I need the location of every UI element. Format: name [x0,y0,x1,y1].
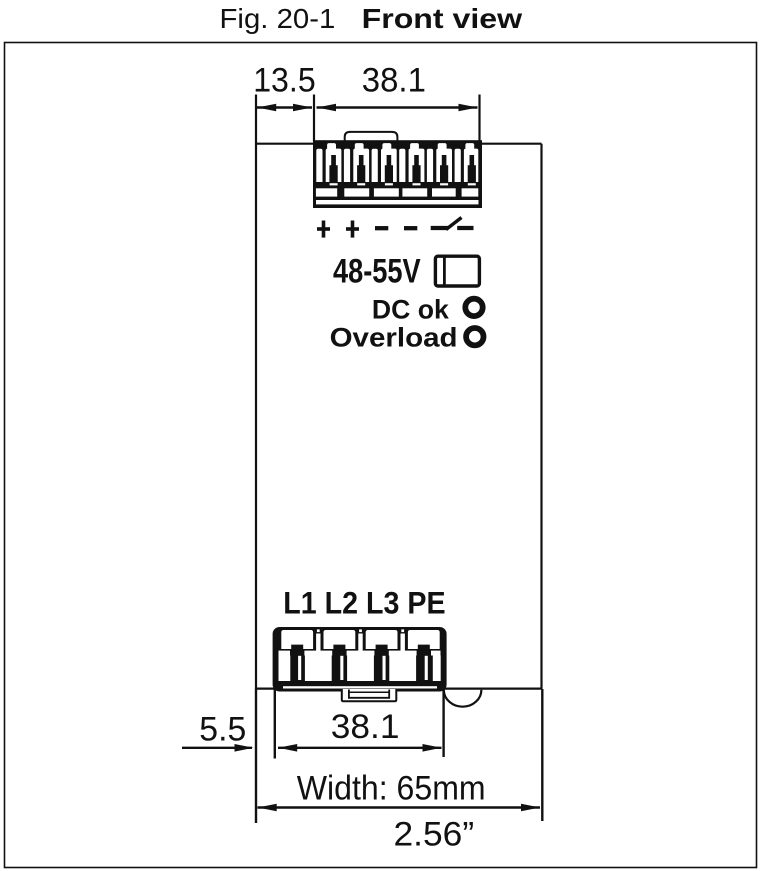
svg-text:Front view: Front view [362,3,523,34]
svg-text:L1 L2 L3 PE: L1 L2 L3 PE [283,584,445,620]
svg-text:13.5: 13.5 [253,62,316,100]
svg-text:Fig. 20-1: Fig. 20-1 [220,3,336,34]
svg-text:Width: 65mm: Width: 65mm [297,770,486,808]
svg-text:38.1: 38.1 [362,62,426,100]
svg-text:DC ok: DC ok [372,295,449,325]
svg-text:2.56”: 2.56” [394,816,475,854]
svg-text:Overload: Overload [330,323,458,353]
svg-text:48-55V: 48-55V [333,253,421,291]
svg-text:5.5: 5.5 [199,711,246,749]
svg-text:38.1: 38.1 [331,708,400,746]
